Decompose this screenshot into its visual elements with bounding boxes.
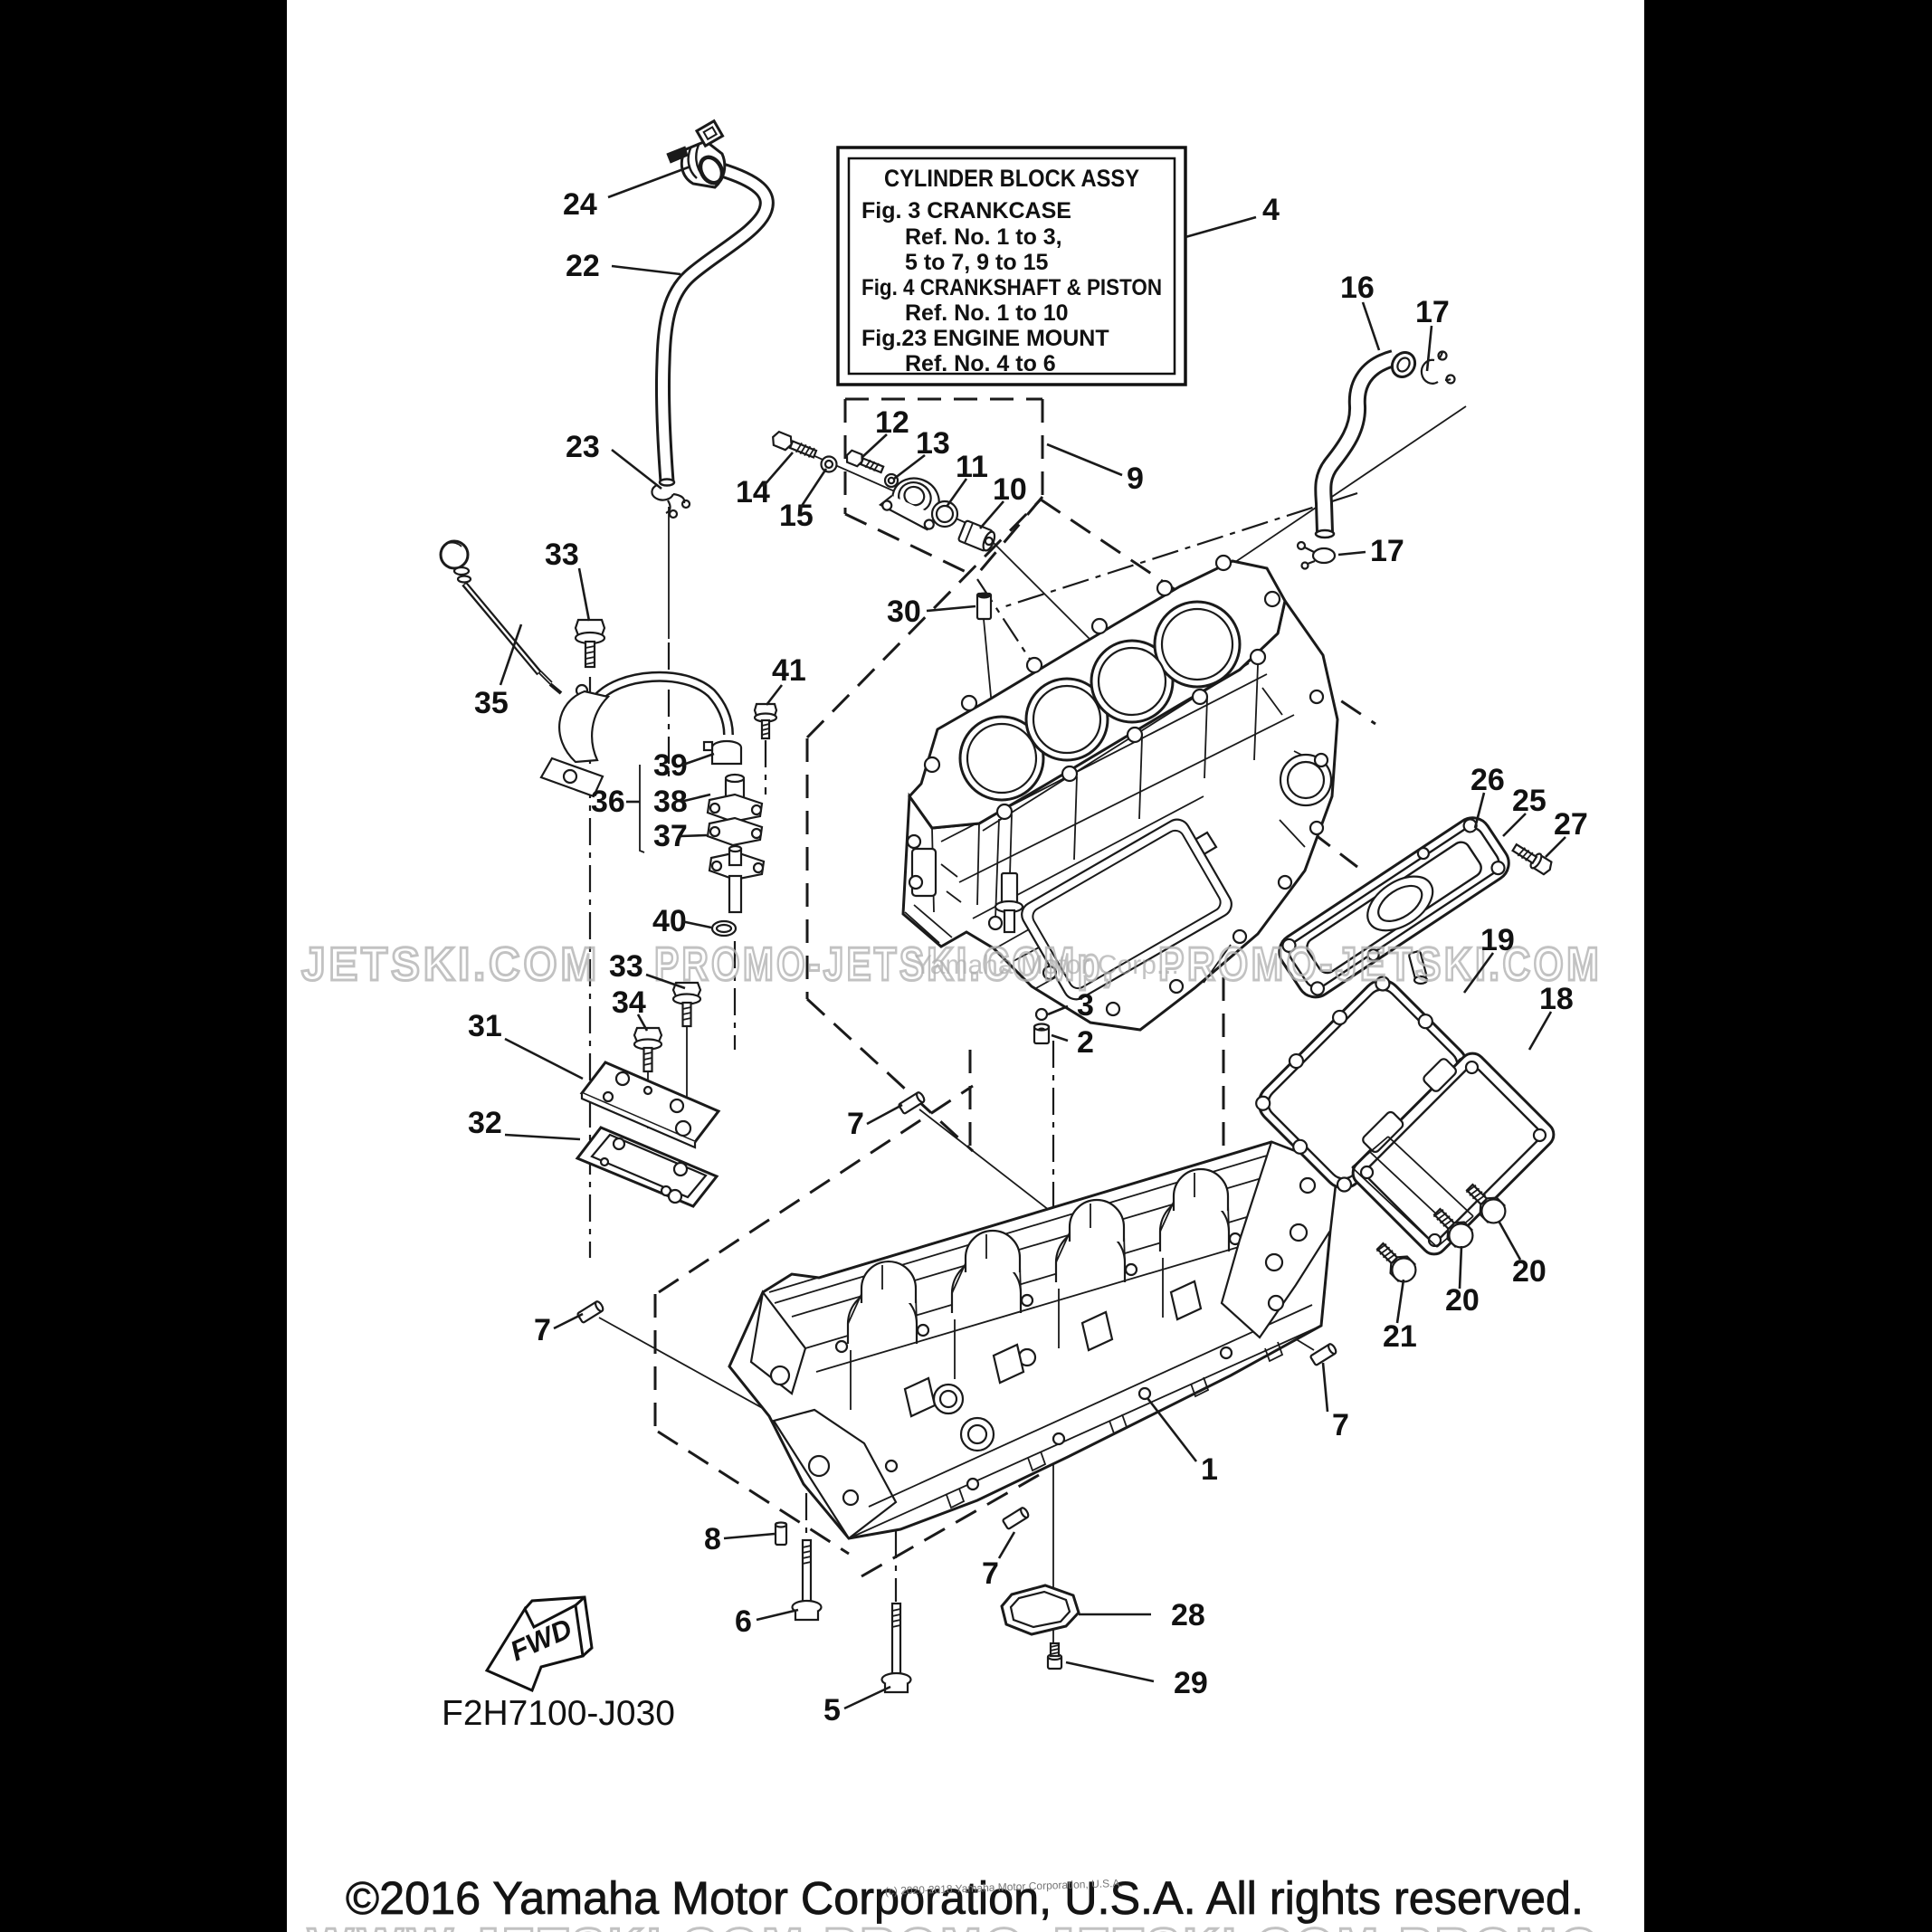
svg-text:13: 13: [916, 426, 950, 461]
svg-text:19: 19: [1480, 923, 1515, 957]
svg-text:12: 12: [875, 405, 909, 440]
svg-text:Ref. No. 1 to 3,: Ref. No. 1 to 3,: [905, 224, 1062, 250]
svg-text:33: 33: [545, 538, 579, 572]
svg-text:WWW.JETSKI.COM PROMO-JETSKI.CO: WWW.JETSKI.COM PROMO-JETSKI.COM PROMO: [308, 1919, 1602, 1932]
svg-text:30: 30: [887, 595, 921, 629]
svg-text:18: 18: [1539, 982, 1574, 1016]
svg-text:CYLINDER BLOCK ASSY: CYLINDER BLOCK ASSY: [884, 165, 1139, 192]
svg-text:23: 23: [566, 430, 600, 464]
svg-text:35: 35: [474, 686, 509, 720]
svg-text:7: 7: [982, 1556, 999, 1591]
svg-text:27: 27: [1554, 807, 1588, 842]
svg-text:29: 29: [1174, 1666, 1208, 1700]
svg-text:2: 2: [1077, 1025, 1094, 1060]
svg-text:14: 14: [736, 475, 770, 509]
svg-text:3: 3: [1077, 988, 1094, 1023]
svg-text:Fig. 3 CRANKCASE: Fig. 3 CRANKCASE: [861, 198, 1071, 224]
svg-text:34: 34: [612, 985, 646, 1020]
svg-text:20: 20: [1445, 1283, 1480, 1318]
svg-text:7: 7: [534, 1313, 551, 1347]
svg-text:F2H7100-J030: F2H7100-J030: [442, 1694, 675, 1733]
svg-text:21: 21: [1383, 1319, 1417, 1354]
svg-text:Ref. No. 4 to 6: Ref. No. 4 to 6: [905, 351, 1056, 376]
svg-text:20: 20: [1512, 1254, 1547, 1289]
svg-text:7: 7: [847, 1107, 864, 1141]
svg-text:4: 4: [1262, 193, 1280, 227]
svg-text:28: 28: [1171, 1598, 1205, 1632]
svg-text:16: 16: [1340, 271, 1375, 305]
svg-text:41: 41: [772, 653, 806, 688]
svg-text:JETSKI.COM: JETSKI.COM: [301, 938, 600, 991]
svg-text:26: 26: [1470, 763, 1505, 797]
svg-text:33: 33: [609, 949, 643, 984]
svg-text:36: 36: [591, 785, 625, 819]
svg-text:Ref. No. 1 to 10: Ref. No. 1 to 10: [905, 300, 1069, 326]
svg-text:Yamaha Motor Corp...: Yamaha Motor Corp...: [914, 950, 1179, 980]
svg-text:6: 6: [735, 1604, 752, 1639]
svg-text:10: 10: [993, 472, 1027, 507]
svg-text:11: 11: [956, 450, 988, 484]
svg-text:7: 7: [1332, 1408, 1349, 1442]
svg-text:8: 8: [704, 1522, 721, 1556]
svg-text:32: 32: [468, 1106, 502, 1140]
svg-text:22: 22: [566, 249, 600, 283]
svg-text:Fig.23 ENGINE MOUNT: Fig.23 ENGINE MOUNT: [861, 326, 1109, 351]
svg-text:PROMO-JETSKI.COM: PROMO-JETSKI.COM: [1158, 938, 1602, 991]
svg-text:17: 17: [1370, 534, 1404, 568]
svg-text:1: 1: [1201, 1452, 1218, 1487]
svg-text:©2016 Yamaha Motor Corporation: ©2016 Yamaha Motor Corporation, U.S.A. A…: [346, 1872, 1584, 1924]
svg-text:24: 24: [563, 187, 597, 222]
svg-text:31: 31: [468, 1009, 502, 1043]
svg-text:9: 9: [1127, 462, 1144, 496]
svg-text:Fig. 4 CRANKSHAFT & PISTON: Fig. 4 CRANKSHAFT & PISTON: [861, 275, 1162, 300]
svg-text:15: 15: [779, 499, 814, 533]
svg-text:5: 5: [823, 1693, 841, 1727]
svg-text:25: 25: [1512, 784, 1547, 818]
svg-text:17: 17: [1415, 295, 1450, 329]
svg-text:5 to 7, 9 to 15: 5 to 7, 9 to 15: [905, 250, 1048, 275]
